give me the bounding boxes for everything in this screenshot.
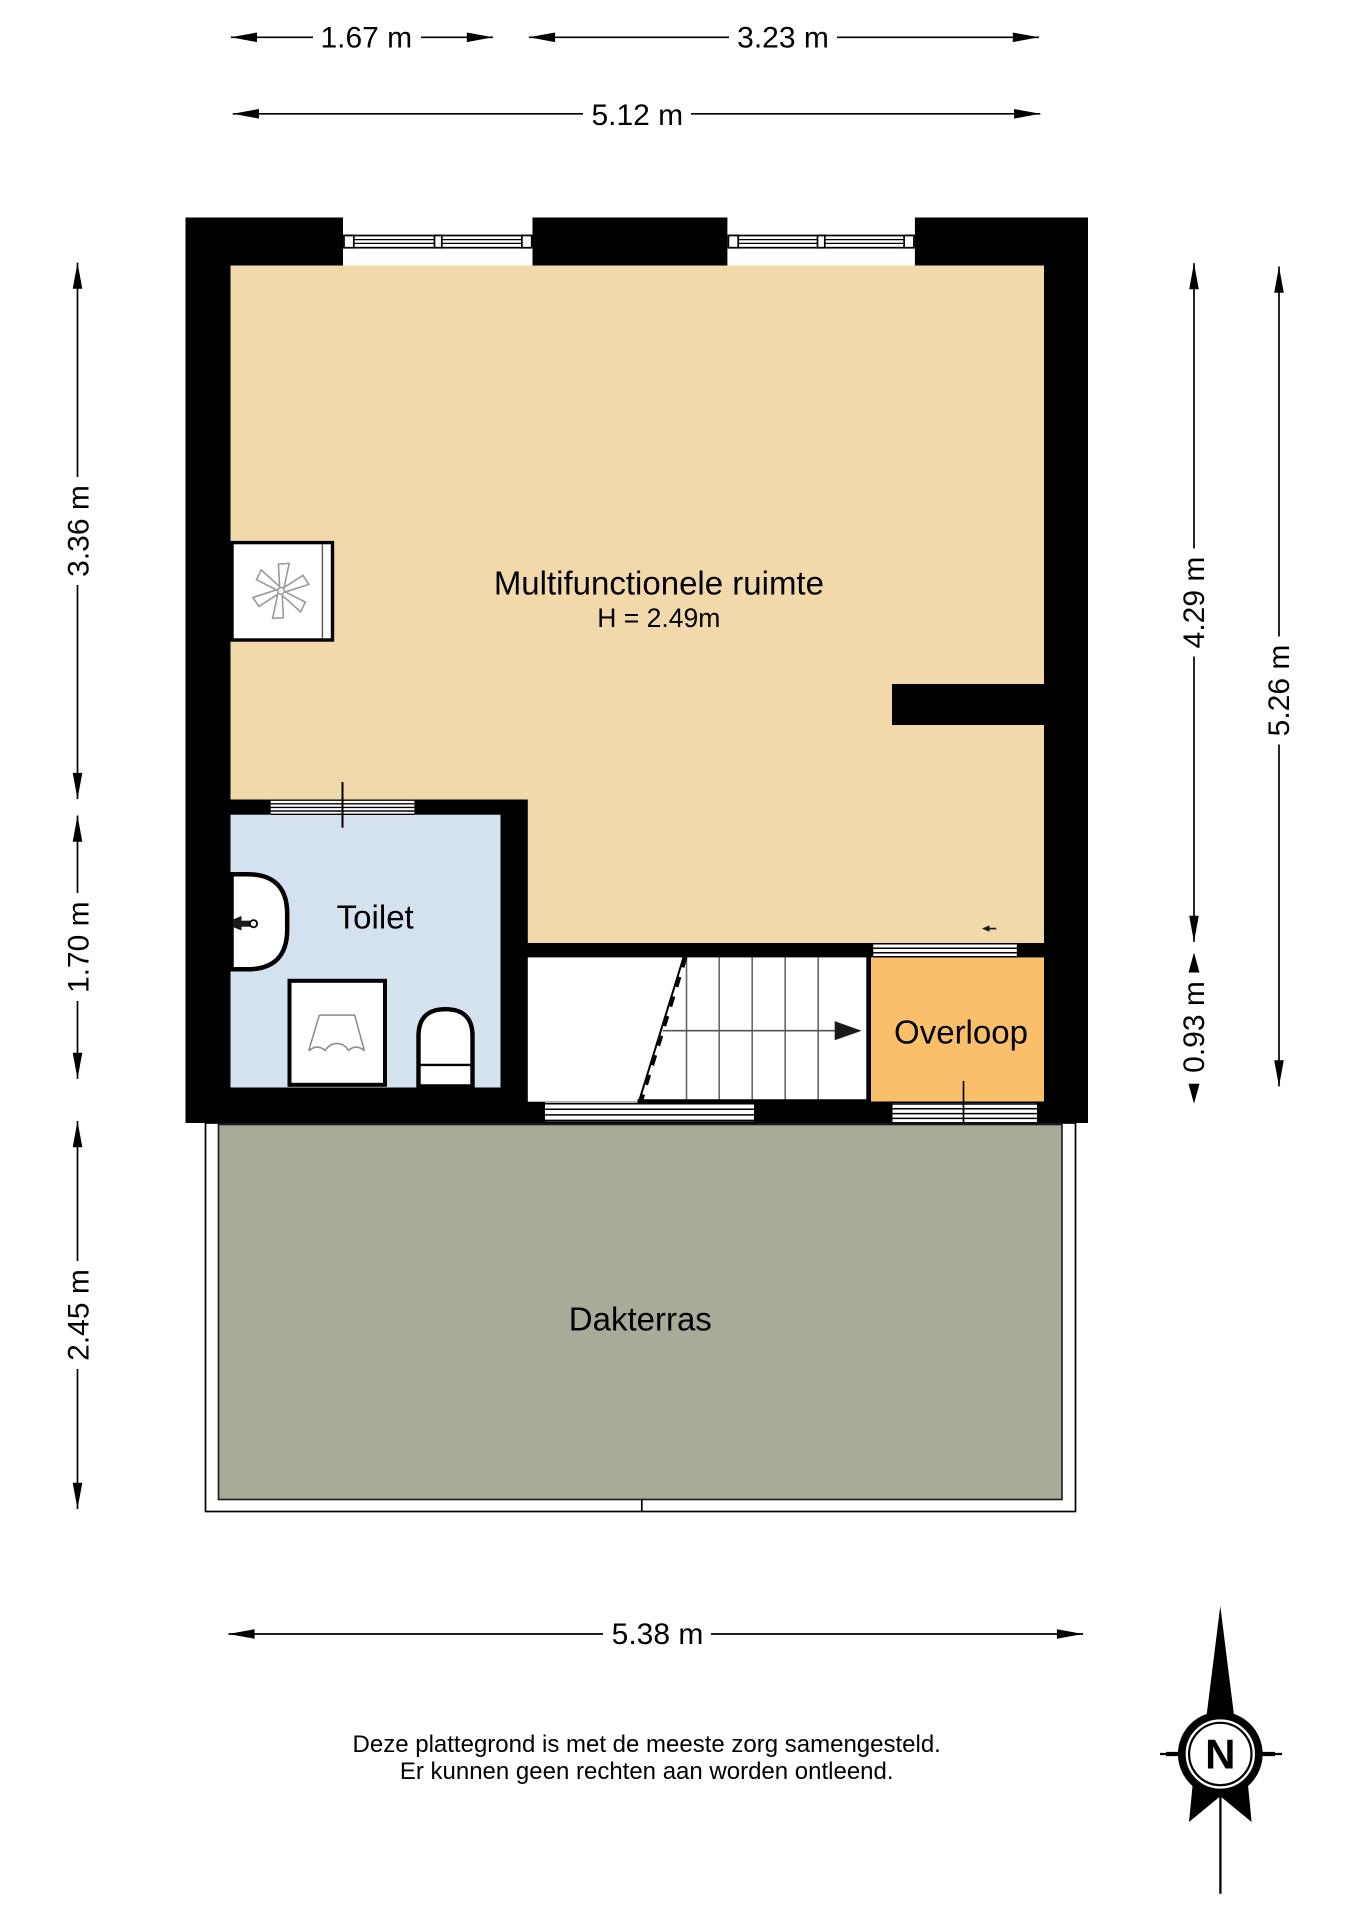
svg-text:H = 2.49m: H = 2.49m: [597, 603, 720, 633]
svg-text:Overloop: Overloop: [894, 1014, 1028, 1051]
svg-text:3.23 m: 3.23 m: [737, 22, 829, 55]
svg-text:5.38 m: 5.38 m: [612, 1618, 704, 1651]
svg-text:4.29 m: 4.29 m: [1178, 557, 1211, 649]
svg-text:N: N: [1205, 1731, 1235, 1778]
svg-text:2.45 m: 2.45 m: [63, 1269, 96, 1361]
svg-text:1.67 m: 1.67 m: [320, 22, 412, 55]
svg-text:Multifunctionele ruimte: Multifunctionele ruimte: [494, 565, 824, 602]
svg-text:1.70 m: 1.70 m: [63, 901, 96, 993]
svg-text:Dakterras: Dakterras: [569, 1301, 712, 1338]
svg-text:Toilet: Toilet: [337, 899, 414, 936]
svg-text:Deze plattegrond is met de mee: Deze plattegrond is met de meeste zorg s…: [353, 1731, 941, 1758]
svg-text:0.93 m: 0.93 m: [1178, 981, 1211, 1073]
svg-text:5.12 m: 5.12 m: [591, 99, 683, 132]
svg-text:3.36 m: 3.36 m: [63, 485, 96, 577]
svg-text:Er kunnen geen rechten aan wor: Er kunnen geen rechten aan worden ontlee…: [400, 1758, 894, 1785]
svg-text:5.26 m: 5.26 m: [1263, 645, 1296, 737]
